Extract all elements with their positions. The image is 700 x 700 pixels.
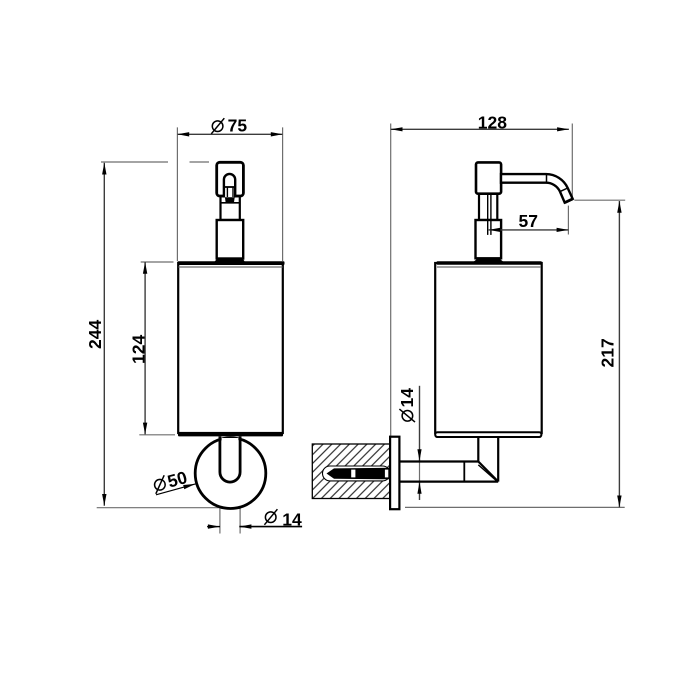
svg-text:244: 244 (85, 320, 105, 349)
svg-text:217: 217 (598, 338, 618, 367)
svg-text:75: 75 (228, 116, 248, 136)
svg-text:14: 14 (397, 388, 417, 408)
svg-text:14: 14 (282, 509, 302, 529)
svg-text:57: 57 (519, 211, 538, 231)
svg-text:124: 124 (129, 335, 149, 364)
svg-text:128: 128 (478, 113, 507, 133)
